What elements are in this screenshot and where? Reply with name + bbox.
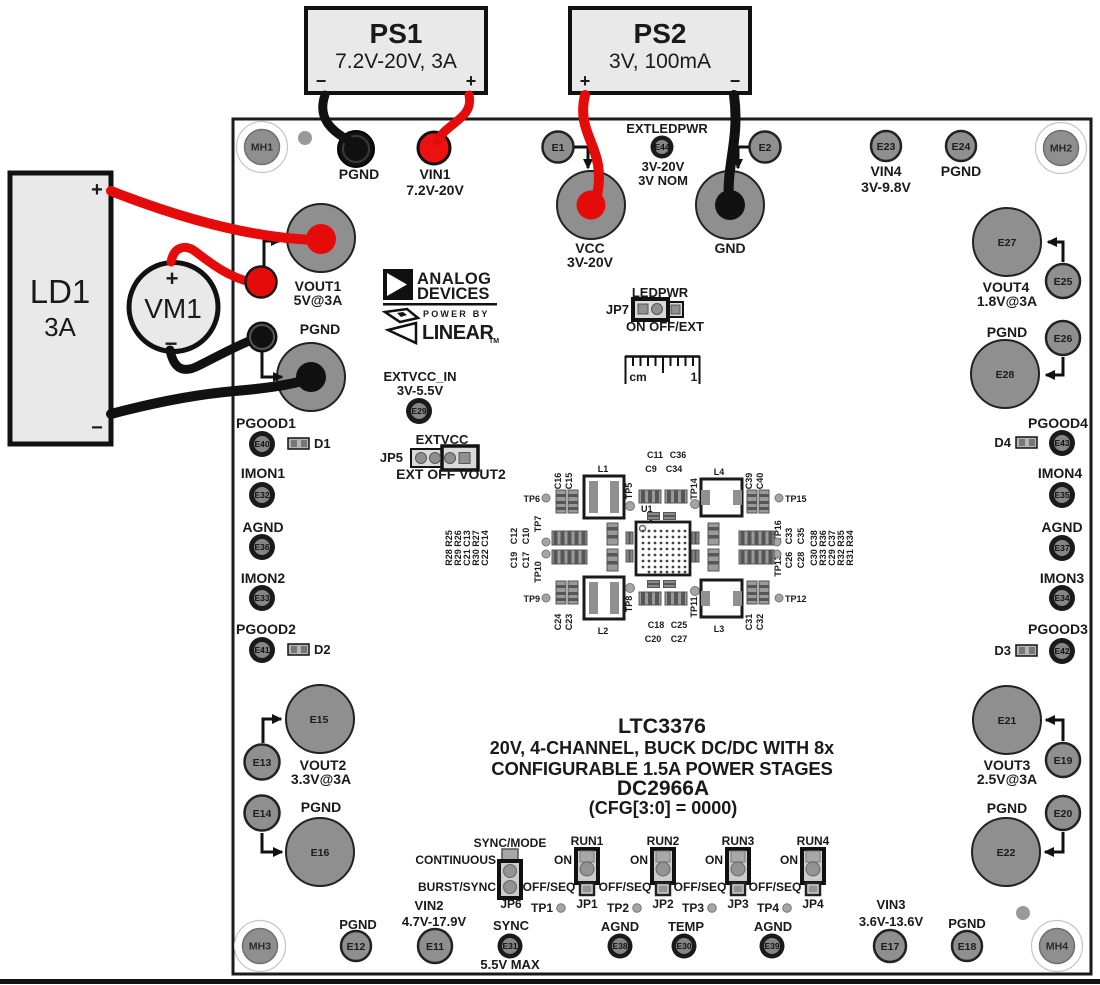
svg-text:MH3: MH3 bbox=[249, 941, 271, 953]
svg-text:JP4: JP4 bbox=[802, 897, 824, 911]
svg-text:+: + bbox=[91, 179, 103, 201]
svg-text:PGND: PGND bbox=[987, 800, 1027, 816]
svg-text:E32: E32 bbox=[254, 490, 269, 500]
svg-text:L4: L4 bbox=[714, 467, 725, 477]
svg-text:OFF/SEQ: OFF/SEQ bbox=[599, 880, 652, 894]
svg-text:3V NOM: 3V NOM bbox=[638, 173, 688, 188]
svg-text:TP14: TP14 bbox=[689, 478, 699, 500]
svg-text:C22 C14: C22 C14 bbox=[480, 530, 490, 566]
svg-text:DC2966A: DC2966A bbox=[617, 777, 709, 800]
svg-text:C36: C36 bbox=[670, 450, 687, 460]
svg-text:TP5: TP5 bbox=[624, 483, 634, 500]
svg-text:5V@3A: 5V@3A bbox=[294, 292, 343, 308]
svg-text:C39: C39 bbox=[744, 473, 754, 490]
svg-text:VIN2: VIN2 bbox=[415, 898, 444, 913]
svg-text:E19: E19 bbox=[1054, 755, 1073, 767]
svg-text:3A: 3A bbox=[44, 312, 76, 342]
svg-text:E28: E28 bbox=[996, 369, 1015, 381]
svg-text:RUN4: RUN4 bbox=[797, 834, 830, 848]
svg-text:OFF/SEQ: OFF/SEQ bbox=[523, 880, 576, 894]
svg-text:RUN1: RUN1 bbox=[571, 834, 604, 848]
svg-text:E38: E38 bbox=[612, 941, 627, 951]
svg-text:C32: C32 bbox=[755, 614, 765, 631]
svg-text:E37: E37 bbox=[1054, 543, 1069, 553]
svg-text:IMON3: IMON3 bbox=[1040, 570, 1085, 586]
svg-text:LINEAR: LINEAR bbox=[422, 322, 495, 344]
svg-text:E15: E15 bbox=[310, 714, 329, 726]
svg-text:E35: E35 bbox=[1054, 490, 1069, 500]
svg-text:C17: C17 bbox=[521, 552, 531, 569]
svg-text:PGND: PGND bbox=[941, 163, 981, 179]
svg-text:3V, 100mA: 3V, 100mA bbox=[609, 50, 711, 73]
svg-text:2.5V@3A: 2.5V@3A bbox=[977, 771, 1037, 787]
svg-text:E36: E36 bbox=[254, 542, 269, 552]
svg-text:C40: C40 bbox=[755, 473, 765, 490]
svg-text:D1: D1 bbox=[314, 436, 331, 451]
svg-text:C16: C16 bbox=[553, 473, 563, 490]
svg-text:TP9: TP9 bbox=[523, 594, 540, 604]
svg-text:PGOOD4: PGOOD4 bbox=[1028, 415, 1088, 431]
svg-text:E21: E21 bbox=[998, 715, 1017, 727]
svg-text:PGOOD3: PGOOD3 bbox=[1028, 621, 1088, 637]
svg-text:PGND: PGND bbox=[948, 916, 986, 931]
svg-text:1: 1 bbox=[691, 370, 698, 384]
svg-text:7.2V-20V: 7.2V-20V bbox=[406, 182, 464, 198]
svg-text:E11: E11 bbox=[426, 941, 444, 953]
svg-text:C9: C9 bbox=[645, 464, 657, 474]
svg-text:D4: D4 bbox=[994, 435, 1011, 450]
svg-text:LD1: LD1 bbox=[30, 273, 91, 310]
svg-text:C23: C23 bbox=[564, 614, 574, 631]
svg-text:E1: E1 bbox=[552, 142, 565, 154]
svg-text:BURST/SYNC: BURST/SYNC bbox=[418, 880, 496, 894]
svg-text:PGOOD2: PGOOD2 bbox=[236, 621, 296, 637]
svg-text:C26: C26 bbox=[784, 552, 794, 569]
svg-text:E42: E42 bbox=[1054, 646, 1069, 656]
svg-text:VIN3: VIN3 bbox=[877, 897, 906, 912]
svg-text:(CFG[3:0] = 0000): (CFG[3:0] = 0000) bbox=[589, 798, 738, 818]
svg-text:E20: E20 bbox=[1054, 808, 1073, 820]
svg-text:3V-20V: 3V-20V bbox=[567, 254, 614, 270]
svg-text:PGND: PGND bbox=[301, 799, 341, 815]
svg-text:PGND: PGND bbox=[339, 917, 377, 932]
svg-text:E16: E16 bbox=[311, 847, 330, 859]
svg-text:−: − bbox=[730, 71, 741, 91]
svg-text:C10: C10 bbox=[521, 528, 531, 545]
svg-text:IMON2: IMON2 bbox=[241, 570, 286, 586]
svg-text:E13: E13 bbox=[253, 757, 272, 769]
svg-text:C20: C20 bbox=[645, 634, 662, 644]
svg-text:ON: ON bbox=[780, 853, 798, 867]
svg-text:C19: C19 bbox=[509, 552, 519, 569]
svg-text:3V-9.8V: 3V-9.8V bbox=[861, 179, 911, 195]
svg-text:PGND: PGND bbox=[300, 321, 340, 337]
svg-text:TP11: TP11 bbox=[689, 596, 699, 617]
svg-text:L3: L3 bbox=[714, 624, 725, 634]
svg-text:TP6: TP6 bbox=[523, 494, 540, 504]
svg-text:JP1: JP1 bbox=[576, 897, 598, 911]
svg-text:TEMP: TEMP bbox=[668, 919, 704, 934]
svg-text:VIN4: VIN4 bbox=[870, 163, 901, 179]
svg-text:E26: E26 bbox=[1054, 333, 1073, 345]
svg-text:JP6: JP6 bbox=[500, 897, 522, 911]
svg-text:EXT OFF VOUT2: EXT OFF VOUT2 bbox=[396, 466, 506, 482]
svg-text:TP3: TP3 bbox=[682, 901, 704, 915]
svg-text:C31: C31 bbox=[744, 614, 754, 631]
svg-text:E12: E12 bbox=[347, 941, 366, 953]
svg-text:TP7: TP7 bbox=[533, 516, 543, 533]
svg-text:E39: E39 bbox=[764, 941, 779, 951]
svg-text:E2: E2 bbox=[759, 142, 772, 154]
svg-text:MH4: MH4 bbox=[1046, 941, 1068, 953]
svg-text:C24: C24 bbox=[553, 614, 563, 631]
svg-text:L2: L2 bbox=[598, 626, 609, 636]
svg-text:OFF/SEQ: OFF/SEQ bbox=[749, 880, 802, 894]
svg-text:3.6V-13.6V: 3.6V-13.6V bbox=[859, 914, 924, 929]
svg-text:TP8: TP8 bbox=[624, 596, 634, 613]
svg-text:PGOOD1: PGOOD1 bbox=[236, 415, 296, 431]
svg-text:C27: C27 bbox=[671, 634, 688, 644]
svg-text:TP4: TP4 bbox=[757, 901, 779, 915]
svg-text:TP1: TP1 bbox=[531, 901, 553, 915]
svg-text:C35: C35 bbox=[796, 528, 806, 545]
svg-text:C33: C33 bbox=[784, 528, 794, 545]
svg-text:C18: C18 bbox=[648, 620, 665, 630]
svg-text:IMON4: IMON4 bbox=[1038, 465, 1083, 481]
svg-text:E23: E23 bbox=[877, 141, 896, 153]
svg-text:PS1: PS1 bbox=[370, 18, 423, 49]
svg-text:3V-5.5V: 3V-5.5V bbox=[397, 383, 444, 398]
svg-text:TP10: TP10 bbox=[533, 561, 543, 583]
svg-text:E30: E30 bbox=[676, 941, 691, 951]
svg-text:MH2: MH2 bbox=[1050, 143, 1072, 155]
svg-text:5.5V MAX: 5.5V MAX bbox=[480, 957, 540, 972]
svg-text:C15: C15 bbox=[564, 473, 574, 490]
svg-text:SYNC: SYNC bbox=[493, 918, 530, 933]
svg-text:E33: E33 bbox=[254, 593, 269, 603]
svg-text:3.3V@3A: 3.3V@3A bbox=[291, 771, 351, 787]
svg-text:D3: D3 bbox=[994, 643, 1011, 658]
svg-text:DEVICES: DEVICES bbox=[417, 285, 489, 303]
svg-text:E14: E14 bbox=[253, 808, 272, 820]
svg-text:ON: ON bbox=[705, 853, 723, 867]
svg-text:E24: E24 bbox=[952, 141, 971, 153]
svg-text:RUN3: RUN3 bbox=[722, 834, 755, 848]
svg-text:+: + bbox=[580, 71, 591, 91]
svg-text:C11: C11 bbox=[647, 450, 663, 460]
svg-text:IMON1: IMON1 bbox=[241, 465, 286, 481]
svg-text:L1: L1 bbox=[598, 464, 609, 474]
svg-text:JP7: JP7 bbox=[606, 302, 629, 317]
svg-text:E17: E17 bbox=[881, 941, 900, 953]
svg-text:E43: E43 bbox=[1054, 438, 1069, 448]
svg-text:CONFIGURABLE 1.5A POWER STAGES: CONFIGURABLE 1.5A POWER STAGES bbox=[491, 758, 832, 779]
svg-text:VIN1: VIN1 bbox=[419, 166, 450, 182]
svg-text:E41: E41 bbox=[254, 645, 269, 655]
svg-text:RUN2: RUN2 bbox=[647, 834, 680, 848]
svg-text:TM: TM bbox=[489, 338, 499, 345]
svg-text:PGND: PGND bbox=[987, 324, 1027, 340]
svg-text:E31: E31 bbox=[502, 941, 517, 951]
svg-text:AGND: AGND bbox=[242, 519, 283, 535]
svg-text:−: − bbox=[91, 417, 103, 439]
svg-text:CONTINUOUS: CONTINUOUS bbox=[415, 853, 496, 867]
svg-text:TP15: TP15 bbox=[785, 494, 807, 504]
svg-text:4.7V-17.9V: 4.7V-17.9V bbox=[402, 914, 467, 929]
svg-text:MH1: MH1 bbox=[251, 142, 273, 154]
svg-text:E25: E25 bbox=[1054, 276, 1073, 288]
svg-text:LTC3376: LTC3376 bbox=[618, 714, 706, 738]
svg-text:SYNC/MODE: SYNC/MODE bbox=[474, 836, 547, 850]
svg-text:JP2: JP2 bbox=[652, 897, 674, 911]
svg-text:PGND: PGND bbox=[339, 166, 379, 182]
svg-text:3V-20V: 3V-20V bbox=[642, 159, 685, 174]
svg-text:C28: C28 bbox=[796, 552, 806, 569]
svg-text:7.2V-20V, 3A: 7.2V-20V, 3A bbox=[335, 50, 457, 73]
svg-text:TP2: TP2 bbox=[607, 901, 629, 915]
svg-text:C12: C12 bbox=[509, 528, 519, 545]
svg-text:C25: C25 bbox=[671, 620, 688, 630]
svg-text:OFF/SEQ: OFF/SEQ bbox=[674, 880, 727, 894]
svg-text:D2: D2 bbox=[314, 642, 331, 657]
svg-text:ON OFF/EXT: ON OFF/EXT bbox=[626, 319, 704, 334]
svg-text:AGND: AGND bbox=[1041, 519, 1082, 535]
svg-text:POWER BY: POWER BY bbox=[423, 309, 490, 319]
svg-text:ON: ON bbox=[554, 853, 572, 867]
svg-text:+: + bbox=[166, 266, 179, 291]
svg-text:EXTVCC_IN: EXTVCC_IN bbox=[384, 369, 457, 384]
svg-text:PS2: PS2 bbox=[634, 18, 687, 49]
svg-text:E18: E18 bbox=[958, 941, 977, 953]
svg-text:1.8V@3A: 1.8V@3A bbox=[977, 293, 1037, 309]
svg-text:JP3: JP3 bbox=[727, 897, 749, 911]
svg-text:E27: E27 bbox=[998, 237, 1017, 249]
svg-text:C34: C34 bbox=[666, 464, 683, 474]
svg-text:E40: E40 bbox=[254, 439, 269, 449]
svg-text:JP5: JP5 bbox=[380, 450, 403, 465]
svg-text:E29: E29 bbox=[411, 406, 426, 416]
svg-text:+: + bbox=[466, 71, 477, 91]
svg-text:AGND: AGND bbox=[754, 919, 792, 934]
svg-text:VM1: VM1 bbox=[144, 293, 202, 324]
svg-text:20V, 4-CHANNEL, BUCK DC/DC WIT: 20V, 4-CHANNEL, BUCK DC/DC WITH 8x bbox=[490, 738, 834, 758]
svg-text:R31 R34: R31 R34 bbox=[845, 530, 855, 566]
svg-text:GND: GND bbox=[714, 240, 745, 256]
svg-text:E44: E44 bbox=[654, 142, 669, 152]
svg-text:AGND: AGND bbox=[601, 919, 639, 934]
svg-text:E34: E34 bbox=[1054, 593, 1069, 603]
svg-text:TP12: TP12 bbox=[785, 594, 807, 604]
svg-text:ON: ON bbox=[630, 853, 648, 867]
svg-text:EXTLEDPWR: EXTLEDPWR bbox=[626, 121, 708, 136]
svg-text:cm: cm bbox=[629, 370, 646, 384]
svg-text:E22: E22 bbox=[997, 847, 1016, 859]
svg-text:−: − bbox=[316, 71, 327, 91]
